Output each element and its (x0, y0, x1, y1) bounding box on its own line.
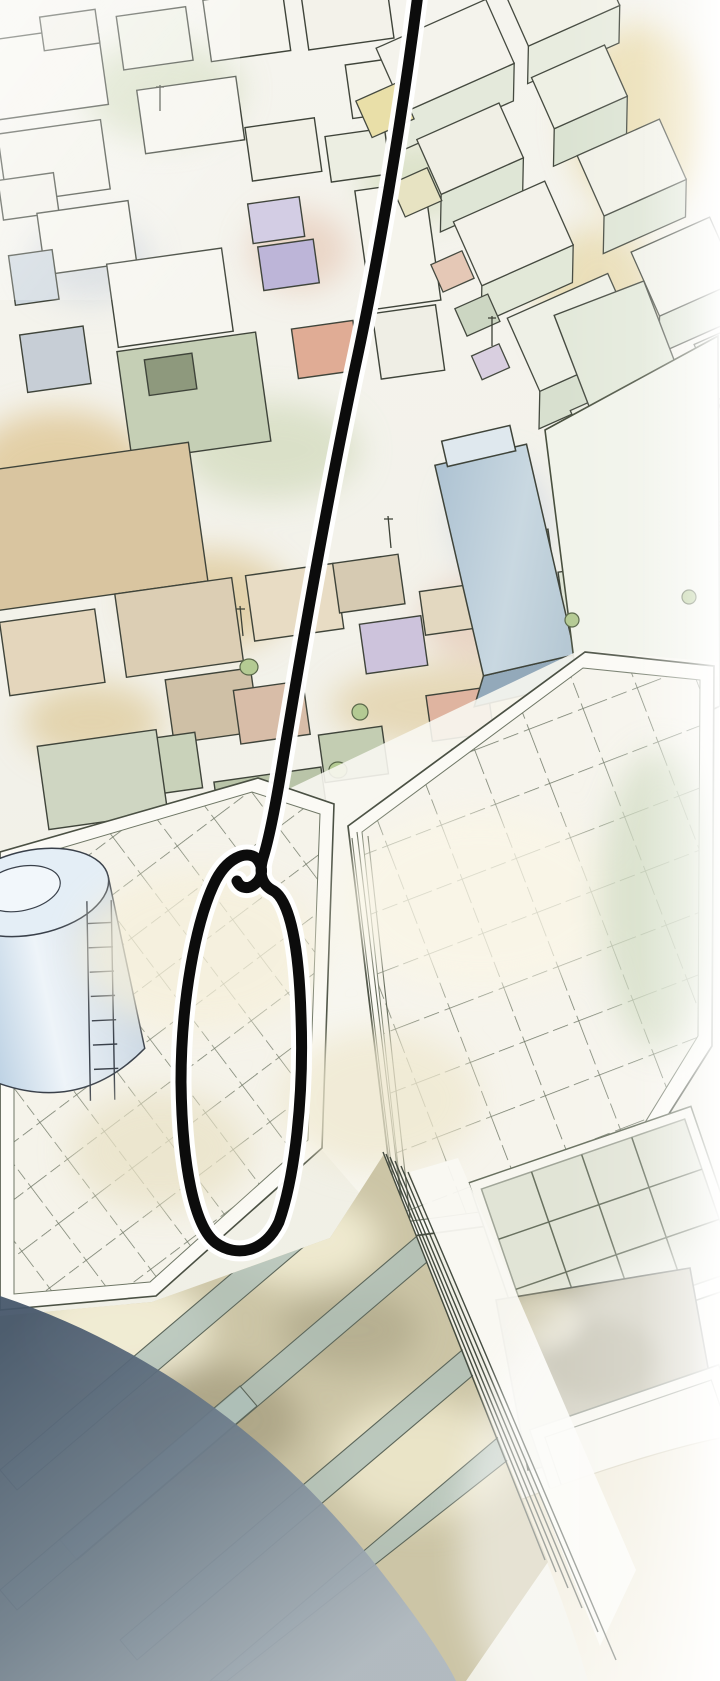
city-block (372, 305, 445, 379)
city-block (258, 239, 320, 290)
city-block (115, 578, 244, 678)
city-block (245, 118, 322, 181)
city-block (333, 554, 405, 613)
panel-illustration (0, 0, 720, 1681)
tree (240, 659, 258, 675)
city-block (144, 353, 197, 395)
tree (352, 704, 368, 720)
city-block (117, 332, 271, 460)
city-block (359, 616, 427, 674)
city-block (0, 609, 105, 696)
webtoon-panel (0, 0, 720, 1681)
city-block (20, 326, 91, 392)
city-block (248, 197, 305, 244)
topleft-white-wash (0, 0, 240, 300)
